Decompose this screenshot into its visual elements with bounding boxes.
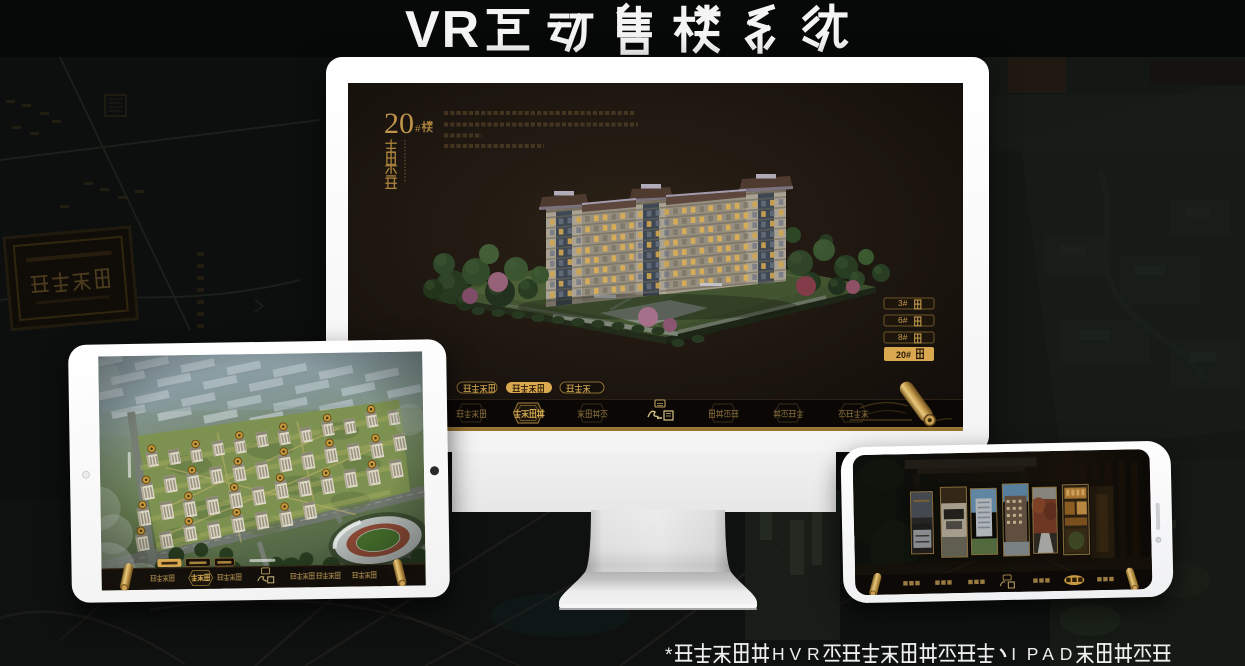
svg-text:P: P bbox=[1027, 644, 1041, 664]
svg-text:3#: 3# bbox=[898, 298, 908, 308]
svg-text:D: D bbox=[1060, 644, 1075, 664]
svg-text:6#: 6# bbox=[898, 315, 908, 325]
svg-text:V: V bbox=[790, 644, 804, 664]
svg-text:VR: VR bbox=[405, 1, 481, 58]
svg-text:H: H bbox=[772, 644, 787, 664]
svg-text:8#: 8# bbox=[898, 332, 908, 342]
svg-text:A: A bbox=[1042, 644, 1056, 664]
svg-text:#: # bbox=[415, 123, 421, 135]
svg-text:20#: 20# bbox=[896, 350, 911, 360]
svg-text:20: 20 bbox=[384, 107, 414, 140]
svg-text:R: R bbox=[807, 644, 822, 664]
svg-text:I: I bbox=[1011, 644, 1018, 664]
svg-text:*: * bbox=[665, 645, 673, 666]
